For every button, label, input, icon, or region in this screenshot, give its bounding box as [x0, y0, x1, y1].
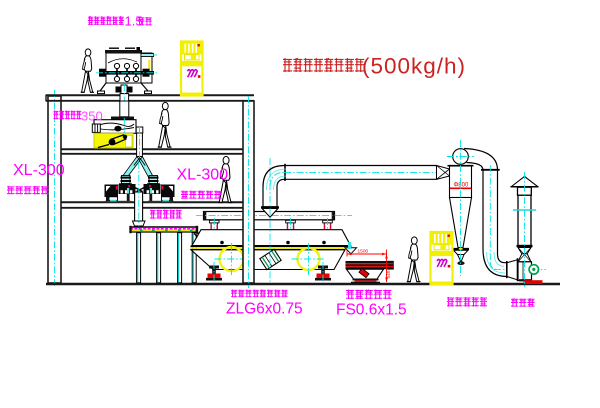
svg-text:ZLG6x0.75: ZLG6x0.75 [226, 301, 303, 318]
svg-text:XL-300: XL-300 [177, 167, 229, 184]
svg-text:XL-300: XL-300 [13, 162, 65, 179]
svg-text:FS0.6x1.5: FS0.6x1.5 [336, 302, 407, 319]
svg-text:1500: 1500 [358, 249, 369, 255]
svg-text:(500kg/h): (500kg/h) [362, 54, 466, 79]
svg-text:350: 350 [81, 108, 103, 123]
svg-text:Φ800: Φ800 [454, 183, 469, 189]
svg-text:545: 545 [386, 270, 392, 278]
